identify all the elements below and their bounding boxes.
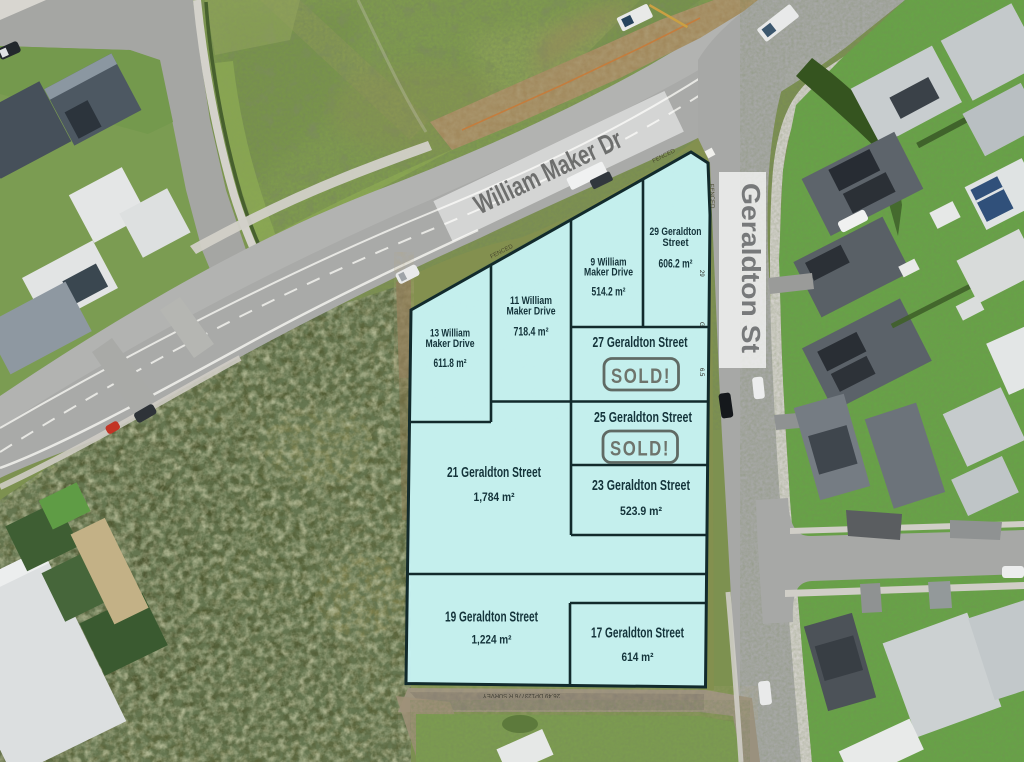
svg-text:Street: Street: [663, 237, 689, 249]
svg-text:SOLD!: SOLD!: [610, 437, 670, 461]
svg-text:Maker Drive: Maker Drive: [584, 267, 633, 279]
svg-text:611.8 m²: 611.8 m²: [434, 358, 467, 370]
svg-text:G: G: [698, 322, 704, 327]
svg-text:25 Geraldton Street: 25 Geraldton Street: [594, 410, 692, 426]
svg-text:21 Geraldton Street: 21 Geraldton Street: [447, 465, 541, 481]
svg-text:23 Geraldton Street: 23 Geraldton Street: [592, 478, 690, 494]
svg-text:718.4 m²: 718.4 m²: [514, 327, 549, 339]
svg-text:1,784 m²: 1,784 m²: [474, 490, 515, 504]
svg-text:SOLD!: SOLD!: [611, 364, 671, 388]
svg-text:Maker Drive: Maker Drive: [426, 338, 475, 350]
svg-text:Geraldton St: Geraldton St: [736, 183, 766, 353]
svg-text:614 m²: 614 m²: [622, 650, 654, 664]
svg-text:17 Geraldton Street: 17 Geraldton Street: [591, 625, 684, 641]
svg-text:6.5: 6.5: [698, 368, 704, 377]
svg-text:606.2 m²: 606.2 m²: [659, 259, 693, 271]
svg-text:523.9 m²: 523.9 m²: [620, 504, 662, 518]
svg-text:FENCED: FENCED: [708, 184, 715, 210]
svg-text:27 Geraldton Street: 27 Geraldton Street: [593, 335, 688, 351]
svg-text:26.49 DP123776 R SURVEY: 26.49 DP123776 R SURVEY: [483, 692, 560, 698]
svg-text:29: 29: [698, 270, 704, 277]
svg-text:1,224 m²: 1,224 m²: [472, 633, 512, 647]
svg-text:19 Geraldton Street: 19 Geraldton Street: [445, 610, 538, 626]
svg-text:514.2 m²: 514.2 m²: [592, 287, 626, 299]
svg-text:Maker Drive: Maker Drive: [507, 306, 556, 318]
